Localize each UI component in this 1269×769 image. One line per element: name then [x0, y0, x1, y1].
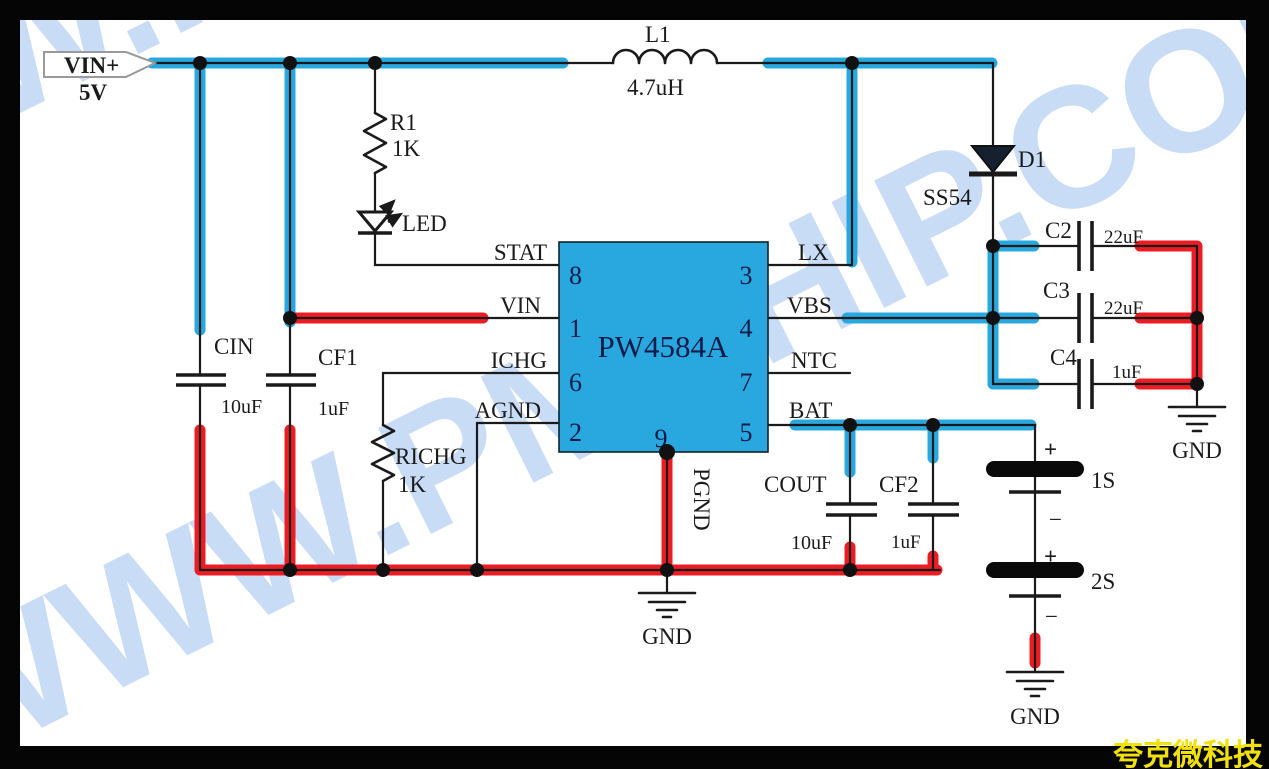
c2-value-label: 22uF — [1104, 227, 1143, 248]
c3-value-label: 22uF — [1104, 298, 1143, 319]
cin-value-label: 10uF — [221, 396, 262, 418]
ic-pw4584a: PW4584A 8 1 6 2 3 4 7 5 9 — [559, 242, 768, 453]
ic-pin5-number: 5 — [740, 418, 753, 447]
component-led: LED — [358, 201, 447, 236]
l1-ref-label: L1 — [645, 22, 671, 47]
r1-value-label: 1K — [392, 136, 421, 161]
r1-ref-label: R1 — [390, 110, 417, 135]
agnd-net-label: AGND — [475, 398, 541, 423]
lx-net-label: LX — [798, 240, 829, 265]
c4-ref-label: C4 — [1050, 345, 1077, 370]
vbs-net-label: VBS — [787, 293, 832, 318]
gnd-label-output: GND — [1172, 438, 1222, 463]
cin-ref-label: CIN — [214, 334, 254, 359]
component-capacitor-cf2: CF2 1uF — [879, 472, 959, 553]
richg-value-label: 1K — [398, 472, 427, 497]
c4-value-label: 1uF — [1112, 362, 1142, 383]
l1-value-label: 4.7uH — [627, 75, 684, 100]
bat-net-label: BAT — [789, 398, 832, 423]
gnd-symbol-output: GND — [1169, 407, 1225, 463]
ic-pin6-number: 6 — [569, 368, 582, 397]
cf2-value-label: 1uF — [891, 532, 921, 553]
cf1-ref-label: CF1 — [318, 345, 358, 370]
ichg-net-label: ICHG — [491, 348, 547, 373]
c3-ref-label: C3 — [1043, 278, 1070, 303]
battery-cell1-label: 1S — [1091, 468, 1115, 493]
component-capacitor-cin: CIN 10uF — [176, 334, 262, 418]
richg-ref-label: RICHG — [395, 444, 467, 469]
vin-input-label: VIN+ — [64, 53, 119, 78]
vin-input-tag: VIN+ 5V — [44, 52, 155, 105]
cout-ref-label: COUT — [764, 472, 827, 497]
component-diode-d1: D1 SS54 — [923, 146, 1046, 210]
schematic-page: WWW.PMCHIP.COM WWW.PMCHIP.COM — [0, 0, 1269, 769]
gnd-symbol-battery: GND — [1007, 672, 1063, 729]
component-capacitor-cf1: CF1 1uF — [266, 345, 358, 420]
pgnd-net-label: PGND — [689, 468, 714, 531]
battery-cell1-plus-sign: + — [1044, 437, 1057, 462]
ic-pin8-number: 8 — [569, 261, 582, 290]
component-capacitor-c4: C4 1uF — [1050, 345, 1142, 409]
ntc-net-label: NTC — [791, 348, 837, 373]
vendor-logo-text: 夸克微科技 — [1113, 741, 1263, 769]
cf2-ref-label: CF2 — [879, 472, 919, 497]
vin-net-label: VIN — [500, 293, 541, 318]
ic-pin1-number: 1 — [569, 314, 582, 343]
cf1-value-label: 1uF — [318, 398, 349, 420]
component-battery-pack: + 1S − + 2S − — [986, 437, 1115, 629]
battery-cell2-positive-plate — [986, 562, 1084, 578]
component-inductor-l1: L1 4.7uH — [613, 22, 717, 100]
d1-value-label: SS54 — [923, 185, 972, 210]
component-resistor-r1: R1 1K — [364, 110, 421, 173]
c2-ref-label: C2 — [1045, 218, 1072, 243]
circuit-schematic: VIN+ 5V L1 4.7uH R1 1K LED RICHG 1K — [0, 0, 1269, 769]
ic-pin3-number: 3 — [740, 261, 753, 290]
component-capacitor-c2: C2 22uF — [1045, 218, 1143, 271]
stat-net-label: STAT — [494, 240, 547, 265]
component-capacitor-cout: COUT 10uF — [764, 472, 877, 554]
d1-ref-label: D1 — [1018, 147, 1046, 172]
vin-voltage-label: 5V — [79, 80, 108, 105]
cout-value-label: 10uF — [791, 532, 832, 554]
gnd-label-battery: GND — [1010, 704, 1060, 729]
ic-part-number: PW4584A — [598, 329, 730, 364]
gnd-label-pgnd: GND — [642, 624, 692, 649]
gnd-symbol-pgnd: GND — [639, 593, 695, 649]
battery-cell2-label: 2S — [1091, 569, 1115, 594]
component-capacitor-c3: C3 22uF — [1043, 278, 1143, 343]
ic-pin2-number: 2 — [569, 418, 582, 447]
battery-cell1-positive-plate — [986, 461, 1084, 477]
battery-cell1-minus-sign: − — [1049, 507, 1062, 532]
led-ref-label: LED — [402, 211, 447, 236]
led-emission-arrow — [383, 201, 394, 212]
component-resistor-richg: RICHG 1K — [372, 425, 467, 497]
battery-cell2-minus-sign: − — [1045, 604, 1058, 629]
ic-pin7-number: 7 — [740, 368, 753, 397]
ic-pin4-number: 4 — [740, 314, 753, 343]
